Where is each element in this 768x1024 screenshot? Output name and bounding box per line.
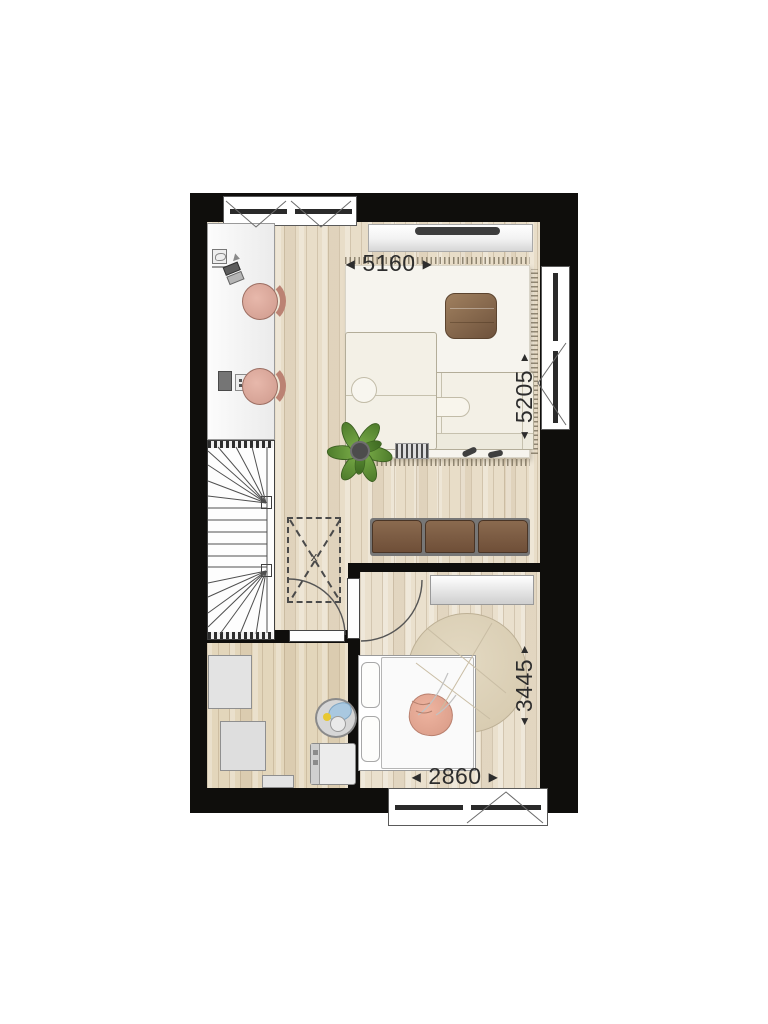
arrow-left-icon: ◀ (412, 771, 422, 783)
window-glass (471, 805, 541, 810)
cabinet (220, 721, 266, 771)
dimension-bedroom-width: ◀ 2860 ▶ (395, 763, 515, 790)
laundry-basket-icon (315, 698, 357, 738)
floorplan-page: { "plan": { "dimensions": { "top": {"val… (0, 0, 768, 1024)
dimension-living-depth: ▲ 5205 ▼ (512, 351, 538, 441)
bed (358, 655, 476, 771)
window-glass (295, 209, 352, 214)
pouf (445, 293, 497, 339)
window-right (541, 266, 570, 430)
bed-pillow (361, 716, 380, 762)
stair-landing (261, 496, 272, 509)
round-pillow (351, 377, 377, 403)
bench-cushion (372, 520, 422, 553)
arrow-up-icon: ▲ (519, 643, 531, 655)
monitor-icon (218, 371, 232, 391)
tv-icon (415, 227, 500, 235)
washing-machine-icon (310, 743, 356, 785)
floor-vent (395, 443, 429, 459)
dimension-bedroom-depth: ▲ 3445 ▼ (512, 643, 538, 727)
dimension-living-width: ◀ 5160 ▶ (337, 250, 441, 277)
desk-stamp-icon (212, 249, 227, 264)
desk-chair (240, 279, 286, 323)
bedroom-door (347, 578, 360, 639)
cabinet (262, 775, 294, 788)
bench-cushion (478, 520, 528, 553)
stair-landing (261, 564, 272, 577)
arrow-down-icon: ▼ (519, 429, 531, 441)
desk-chair (240, 364, 286, 408)
window-glass (553, 351, 558, 423)
window-glass (553, 273, 558, 341)
chair-seat (242, 368, 278, 405)
stair-hatch (208, 632, 273, 639)
bench-cushion (425, 520, 475, 553)
arrow-right-icon: ▶ (423, 258, 433, 270)
dimension-value: 2860 (428, 763, 481, 790)
laundry-door (289, 630, 345, 642)
bed-pillow (361, 662, 380, 708)
window-glass (395, 805, 463, 810)
bench (370, 518, 530, 556)
staircase (207, 440, 275, 640)
dimension-value: 5160 (362, 250, 415, 277)
window-glass (230, 209, 287, 214)
stair-hatch (208, 441, 273, 448)
cabinet (208, 655, 252, 709)
window-top (223, 196, 357, 226)
shaft-x-marker: x (302, 549, 326, 564)
floor-plan: x (190, 193, 578, 813)
arrow-right-icon: ▶ (489, 771, 499, 783)
plant-icon (328, 419, 392, 483)
arrow-left-icon: ◀ (346, 258, 356, 270)
arrow-up-icon: ▲ (519, 351, 531, 363)
chair-seat (242, 283, 278, 320)
window-bottom (388, 788, 548, 826)
dimension-value: 3445 (512, 658, 539, 711)
wardrobe (430, 575, 534, 605)
dimension-value: 5205 (512, 369, 539, 422)
arrow-down-icon: ▼ (519, 715, 531, 727)
